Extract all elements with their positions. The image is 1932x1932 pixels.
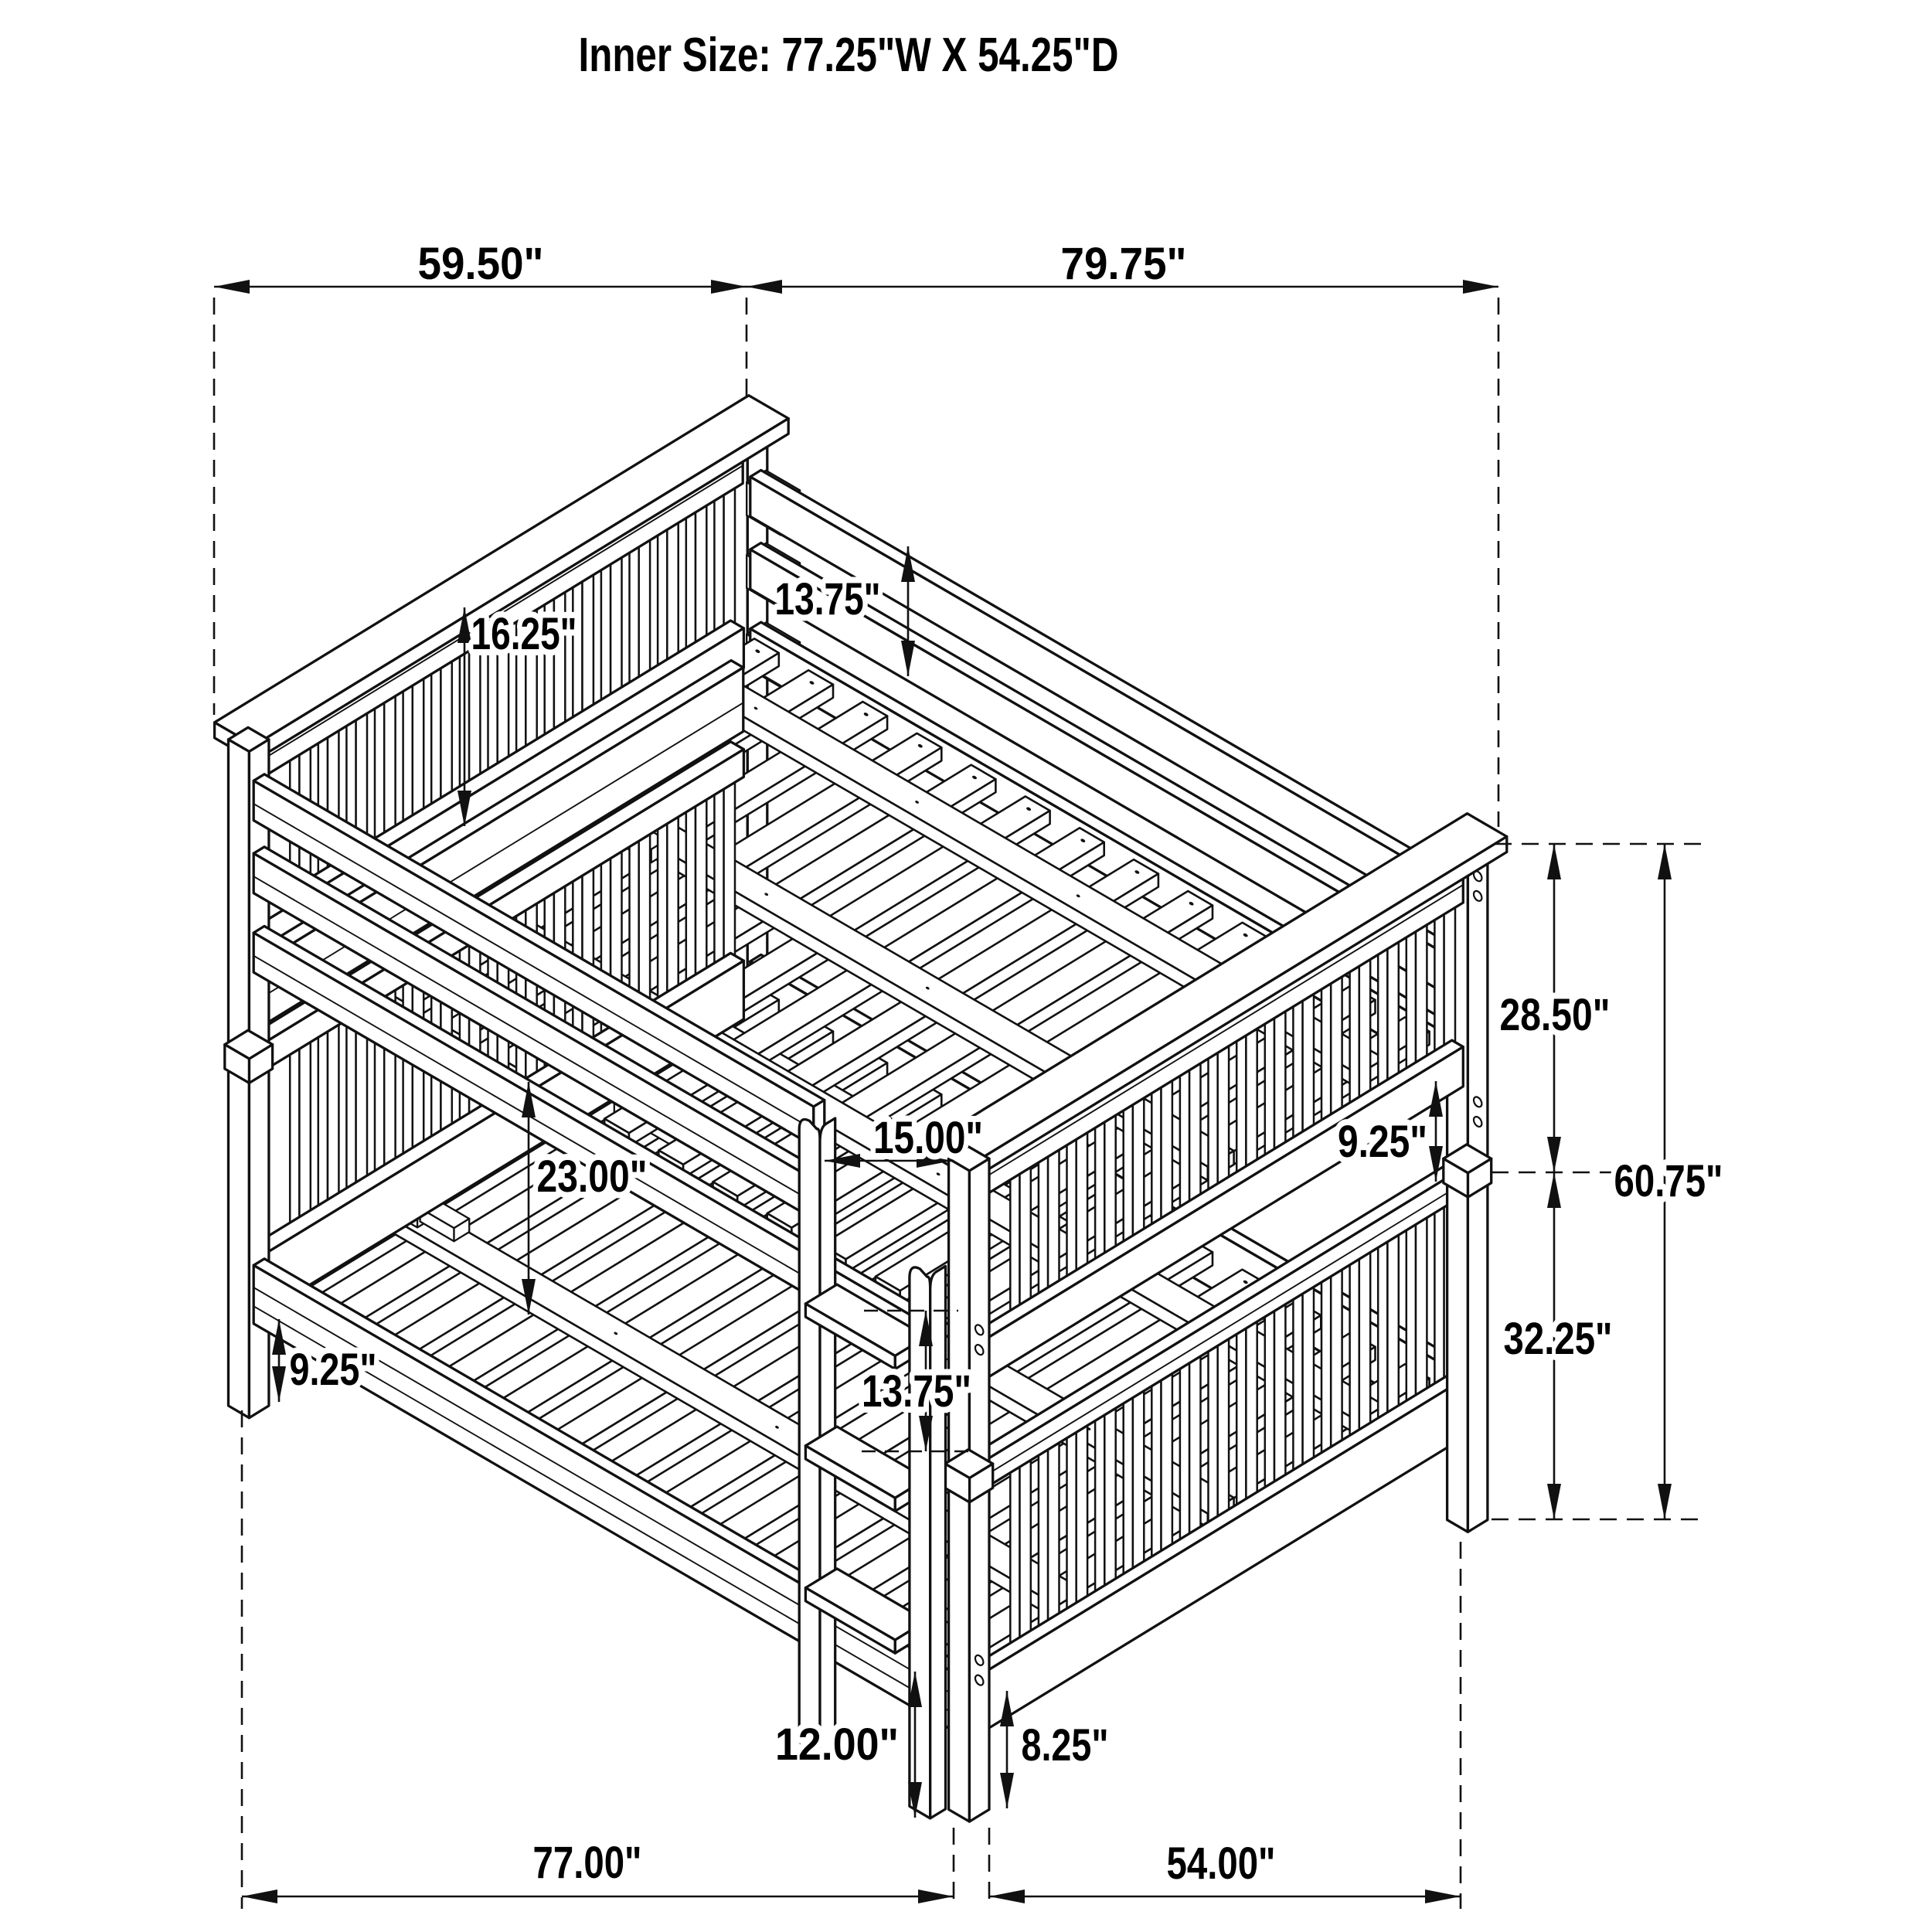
- svg-text:9.25": 9.25": [290, 1345, 377, 1395]
- svg-text:77.00": 77.00": [533, 1838, 642, 1888]
- svg-text:Inner Size: 77.25"W X 54.25"D: Inner Size: 77.25"W X 54.25"D: [579, 29, 1119, 82]
- svg-text:13.75": 13.75": [862, 1366, 971, 1417]
- svg-text:9.25": 9.25": [1338, 1117, 1427, 1167]
- svg-text:8.25": 8.25": [1022, 1720, 1109, 1770]
- svg-text:13.75": 13.75": [775, 574, 881, 624]
- svg-text:60.75": 60.75": [1614, 1156, 1723, 1206]
- svg-text:32.25": 32.25": [1504, 1314, 1613, 1364]
- svg-text:59.50": 59.50": [418, 239, 544, 289]
- svg-text:12.00": 12.00": [775, 1719, 899, 1770]
- svg-text:28.50": 28.50": [1500, 990, 1611, 1040]
- svg-text:54.00": 54.00": [1167, 1838, 1276, 1889]
- svg-text:79.75": 79.75": [1061, 239, 1187, 289]
- svg-text:23.00": 23.00": [537, 1151, 648, 1202]
- svg-text:16.25": 16.25": [471, 609, 577, 659]
- svg-text:15.00": 15.00": [873, 1113, 983, 1163]
